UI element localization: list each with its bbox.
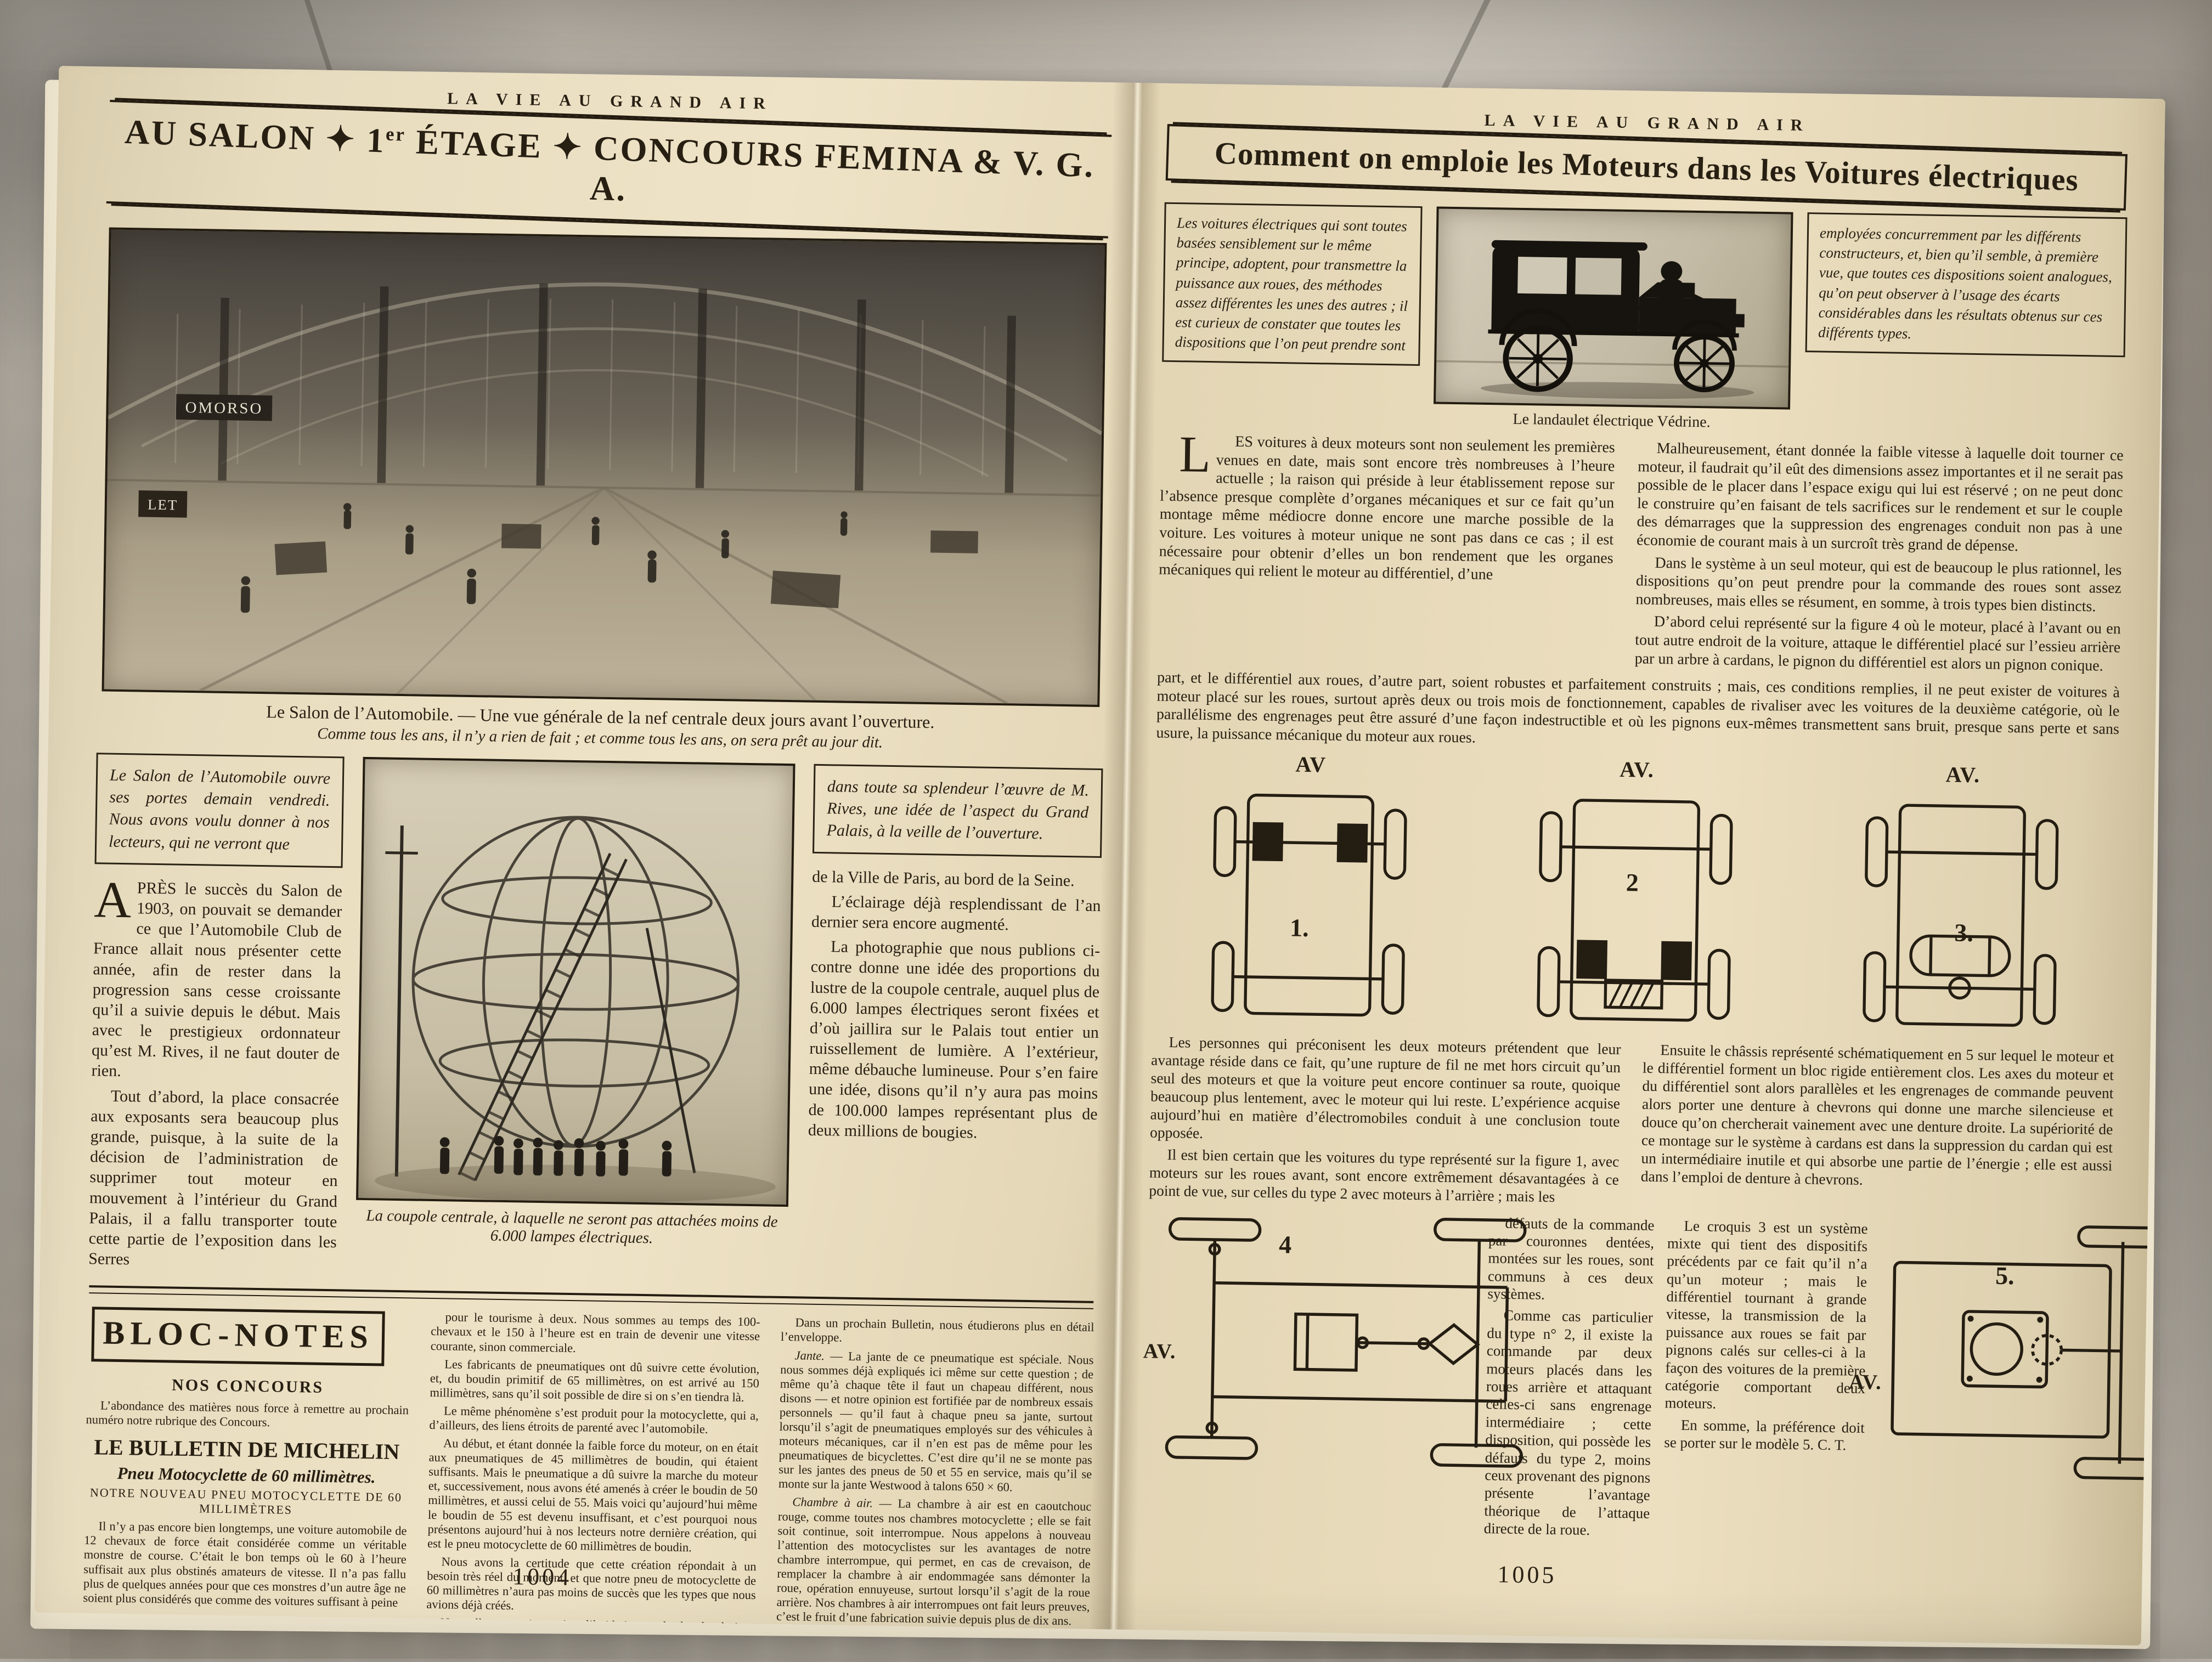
left-title-sup: er: [385, 124, 406, 145]
bloc-notes-title: BLOC-NOTES: [91, 1307, 385, 1366]
av-label-1: AV: [1155, 749, 1466, 779]
diagram-number-5: 5.: [1995, 1261, 2015, 1291]
photo1-caption: Le Salon de l’Automobile. — Une vue géné…: [97, 699, 1104, 755]
chassis-diagram-5: [1877, 1220, 2165, 1482]
left-title-banner: AU SALON ✦ 1er ÉTAGE ✦ CONCOURS FEMINA &…: [106, 100, 1111, 239]
paragraph: Ensuite le châssis représenté schématiqu…: [1641, 1040, 2114, 1192]
bulletin-michelin-heading: LE BULLETIN DE MICHELIN: [85, 1434, 408, 1465]
pneu-subheading: Pneu Motocyclette de 60 millimètres.: [85, 1463, 408, 1488]
moteurs-intro-box-left: Les voitures électriques qui sont toutes…: [1161, 202, 1422, 427]
intro-box-right: dans toute sa splendeur l’œuvre de M. Ri…: [812, 764, 1103, 858]
intro-box-left-text: Les voitures électriques qui sont toutes…: [1162, 202, 1423, 366]
paragraph: Nous avons la certitude que cette créati…: [426, 1554, 757, 1617]
right-title-text: Comment on emploie les Moteurs dans les …: [1214, 136, 2079, 197]
jante-label: Jante.: [794, 1348, 825, 1363]
salon-article-center-column: La coupole centrale, à laquelle ne seron…: [355, 757, 795, 1285]
diagram-number-2: 2: [1626, 868, 1639, 897]
bloc-notes-title-text: BLOC-NOTES: [103, 1315, 374, 1355]
paragraph: L’abondance des matières nous force à re…: [86, 1398, 409, 1432]
moteurs-intro-box-right: employées concurremment par les différen…: [1804, 212, 2127, 438]
left-title-text-2: ÉTAGE ✦ CONCOURS FEMINA & V. G. A.: [405, 122, 1095, 208]
bloc-notes-section: BLOC-NOTES NOS CONCOURS L’abondance des …: [83, 1304, 1094, 1629]
moteurs-columns: LES voitures à deux moteurs sont non seu…: [1157, 432, 2123, 680]
chambre-text: — La chambre à air est en caoutchouc rou…: [776, 1496, 1092, 1627]
photo-coupole: [356, 757, 795, 1207]
bloc-notes-column-1: BLOC-NOTES NOS CONCOURS L’abondance des …: [83, 1304, 410, 1629]
page-left: LA VIE AU GRAND AIR AU SALON ✦ 1er ÉTAGE…: [35, 66, 1137, 1630]
nos-concours-heading: NOS CONCOURS: [86, 1375, 409, 1399]
diagram-type-2: AV. 2: [1477, 754, 1792, 1038]
paragraph: L’éclairage déjà resplendissant de l’an …: [811, 891, 1101, 937]
paragraph: APRÈS le succès du Salon de 1903, on pou…: [91, 877, 342, 1085]
bloc-notes-column-2: pour le tourisme à deux. Nous sommes au …: [426, 1310, 760, 1629]
photo-landaulet-wrap: Le landaulet électrique Védrine.: [1433, 206, 1793, 432]
intro-box-left: Le Salon de l’Automobile ouvre ses porte…: [95, 753, 345, 868]
diagram-number-1: 1.: [1290, 913, 1309, 942]
paragraph-jante: Jante. — La jante de ce pneumatique est …: [778, 1348, 1094, 1496]
hall-sign-let: LET: [148, 496, 178, 513]
moteurs-left-column: LES voitures à deux moteurs sont non seu…: [1157, 432, 1615, 671]
paragraph: LES voitures à deux moteurs sont non seu…: [1159, 432, 1615, 586]
paragraph: Il est bien certain que les voitures du …: [1149, 1145, 1619, 1206]
mid-right-column: Ensuite le châssis représenté schématiqu…: [1640, 1040, 2114, 1218]
paragraph: Nous allons examiner aujourd’hui la jant…: [426, 1615, 755, 1629]
moteurs-intro-row: Les voitures électriques qui sont toutes…: [1161, 202, 2127, 438]
diagram-type-4: AV. 4: [1144, 1208, 1476, 1541]
bottom-diagrams-row: AV. 4: [1144, 1208, 2112, 1551]
paragraph: Le même phénomène s’est produit pour la …: [429, 1404, 759, 1438]
page-number-1005: 1005: [1497, 1561, 1557, 1590]
diagram-type-5: AV. 5.: [1876, 1220, 2111, 1551]
paragraph: En somme, la préférence doit se porter s…: [1664, 1416, 1865, 1455]
paragraph: D’abord celui représenté sur la figure 4…: [1635, 613, 2121, 676]
dropcap-l: L: [1160, 432, 1217, 476]
paragraph: Dans le système à un seul moteur, qui es…: [1635, 553, 2121, 617]
moteurs-fullwidth-paragraph: part, et le différentiel aux roues, d’au…: [1156, 669, 2120, 757]
av-label-3: AV.: [1808, 759, 2119, 790]
landaulet-illustration: [1436, 209, 1791, 408]
salon-article: Le Salon de l’Automobile ouvre ses porte…: [88, 753, 1103, 1289]
moteurs-right-column: Malheureusement, étant donnée la faible …: [1634, 439, 2124, 679]
paragraph: de la Ville de Paris, au bord de la Sein…: [812, 866, 1102, 891]
paragraph: Les fabricants de pneumatiques ont dû su…: [430, 1357, 759, 1405]
diagram-number-4: 4: [1279, 1230, 1292, 1259]
paragraph: Les personnes qui préconisent les deux m…: [1150, 1032, 1621, 1148]
photo-salon-hall: OMORSO LET: [101, 227, 1107, 706]
chassis-diagrams-row: AV 1. AV. 2: [1152, 749, 2119, 1043]
paragraph: Il n’y a pas encore bien longtemps, une …: [83, 1519, 407, 1610]
salon-article-left-column: Le Salon de l’Automobile ouvre ses porte…: [88, 753, 345, 1277]
bloc-notes-column-3: Dans un prochain Bulletin, nous étudiero…: [776, 1315, 1094, 1629]
av-label-2: AV.: [1482, 754, 1793, 784]
bottom-text-b: Le croquis 3 est un système mixte qui ti…: [1662, 1217, 1867, 1547]
magazine-spread: LA VIE AU GRAND AIR AU SALON ✦ 1er ÉTAGE…: [35, 66, 2165, 1646]
diagram-type-1: AV 1.: [1152, 749, 1466, 1033]
chambre-label: Chambre à air.: [792, 1495, 873, 1510]
chassis-diagram-3: [1853, 787, 2068, 1042]
dropcap-a: A: [94, 877, 137, 920]
diagram-number-3: 3.: [1954, 918, 1973, 947]
page-right: LA VIE AU GRAND AIR Comment on emploie l…: [1113, 83, 2165, 1646]
photo-landaulet-caption: Le landaulet électrique Védrine.: [1433, 409, 1790, 432]
paragraph: La photographie que nous publions ci-con…: [808, 936, 1101, 1145]
moteurs-mid-columns: Les personnes qui préconisent les deux m…: [1149, 1032, 2114, 1218]
av-label-5: AV.: [1849, 1370, 1882, 1395]
paragraph-chambre: Chambre à air. — La chambre à air est en…: [776, 1495, 1092, 1629]
pneu-subheading-smallcaps: NOTRE NOUVEAU PNEU MOTOCYCLETTE DE 60 MI…: [84, 1485, 408, 1518]
paragraph-text: ES voitures à deux moteurs sont non seul…: [1159, 433, 1615, 584]
hall-sign-omorso: OMORSO: [185, 399, 263, 417]
jante-text: — La jante de ce pneumatique est spécial…: [778, 1349, 1094, 1494]
section-divider: [89, 1285, 1093, 1309]
chassis-diagram-4: [1145, 1208, 1533, 1472]
chassis-diagram-2: [1527, 782, 1742, 1037]
diagram-type-3: AV. 3.: [1804, 759, 2119, 1043]
salon-article-right-column: dans toute sa splendeur l’œuvre de M. Ri…: [806, 764, 1103, 1289]
photo-of-magazine-on-marble: LA VIE AU GRAND AIR AU SALON ✦ 1er ÉTAGE…: [0, 0, 2212, 1659]
paragraph: Au début, et étant donnée la faible forc…: [427, 1436, 758, 1556]
photo-landaulet: [1434, 206, 1793, 409]
paragraph: Malheureusement, étant donnée la faible …: [1637, 439, 2124, 557]
paragraph: Le croquis 3 est un système mixte qui ti…: [1664, 1217, 1868, 1415]
paragraph: Tout d’abord, la place consacrée aux exp…: [88, 1086, 339, 1273]
page-number-1004: 1004: [512, 1562, 572, 1591]
mid-left-column: Les personnes qui préconisent les deux m…: [1149, 1032, 1621, 1210]
left-title-text-1: AU SALON ✦ 1: [124, 112, 386, 160]
av-label-4: AV.: [1143, 1339, 1176, 1364]
paragraph: Dans un prochain Bulletin, nous étudiero…: [781, 1315, 1094, 1349]
salon-hall-illustration: OMORSO LET: [104, 230, 1105, 705]
photo2-caption: La coupole centrale, à laquelle ne seron…: [356, 1207, 788, 1250]
chassis-diagram-1: [1201, 776, 1417, 1032]
intro-box-right-text: employées concurremment par les différen…: [1805, 212, 2128, 357]
coupole-illustration: [358, 759, 793, 1205]
paragraph: pour le tourisme à deux. Nous sommes au …: [431, 1310, 760, 1358]
